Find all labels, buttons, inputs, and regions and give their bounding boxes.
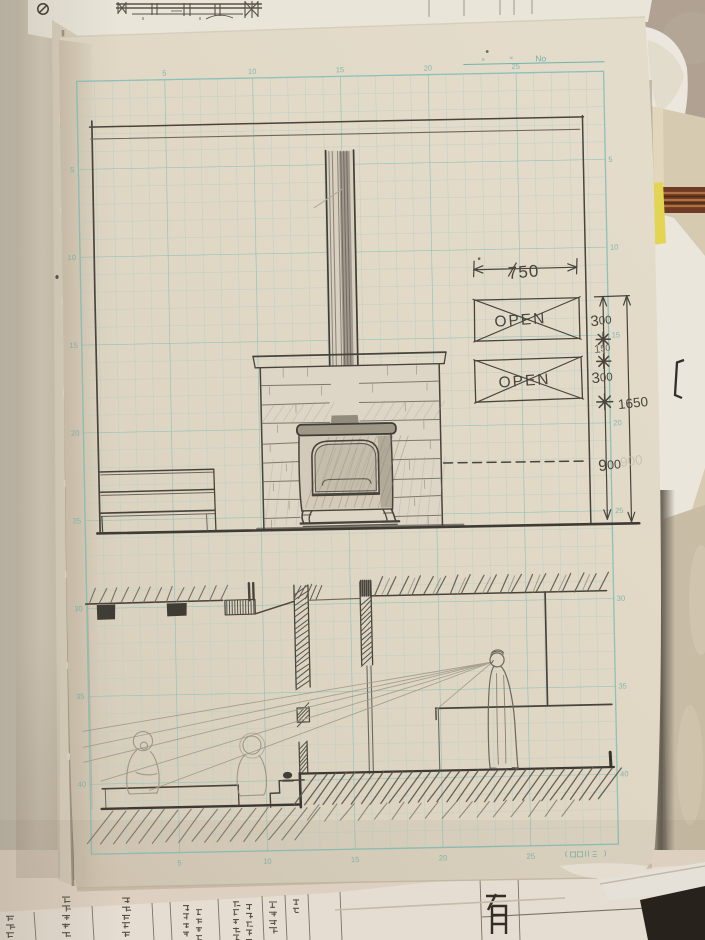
svg-text:15: 15 <box>351 855 360 864</box>
svg-text:35: 35 <box>618 682 627 691</box>
svg-text:20: 20 <box>424 64 433 73</box>
svg-text:25: 25 <box>527 852 536 861</box>
svg-text:5: 5 <box>608 155 612 164</box>
svg-text:35: 35 <box>76 692 85 701</box>
svg-text:30: 30 <box>617 594 626 603</box>
svg-text:20: 20 <box>439 853 448 862</box>
svg-text:5: 5 <box>162 69 166 78</box>
svg-text:5: 5 <box>70 165 74 174</box>
svg-text:40: 40 <box>620 769 629 778</box>
svg-text:10: 10 <box>248 67 257 76</box>
svg-text:15: 15 <box>612 330 621 339</box>
svg-text:×: × <box>481 57 485 64</box>
svg-text:5: 5 <box>177 858 181 867</box>
svg-text:900: 900 <box>619 452 643 470</box>
svg-text:15: 15 <box>336 65 345 74</box>
svg-text:No: No <box>535 53 546 63</box>
svg-text:10: 10 <box>610 243 619 252</box>
svg-text:40: 40 <box>78 780 87 789</box>
svg-text:25: 25 <box>73 516 82 525</box>
svg-text:10: 10 <box>263 857 272 866</box>
svg-text:20: 20 <box>71 429 80 438</box>
svg-text:×: × <box>509 55 513 62</box>
svg-text:10: 10 <box>68 253 77 262</box>
svg-text:15: 15 <box>69 341 78 350</box>
svg-text:30: 30 <box>74 604 83 613</box>
svg-text:25: 25 <box>511 62 520 71</box>
svg-text:750: 750 <box>507 261 540 283</box>
svg-text:20: 20 <box>613 418 622 427</box>
svg-text:25: 25 <box>615 506 624 515</box>
svg-text:1650: 1650 <box>617 394 648 412</box>
